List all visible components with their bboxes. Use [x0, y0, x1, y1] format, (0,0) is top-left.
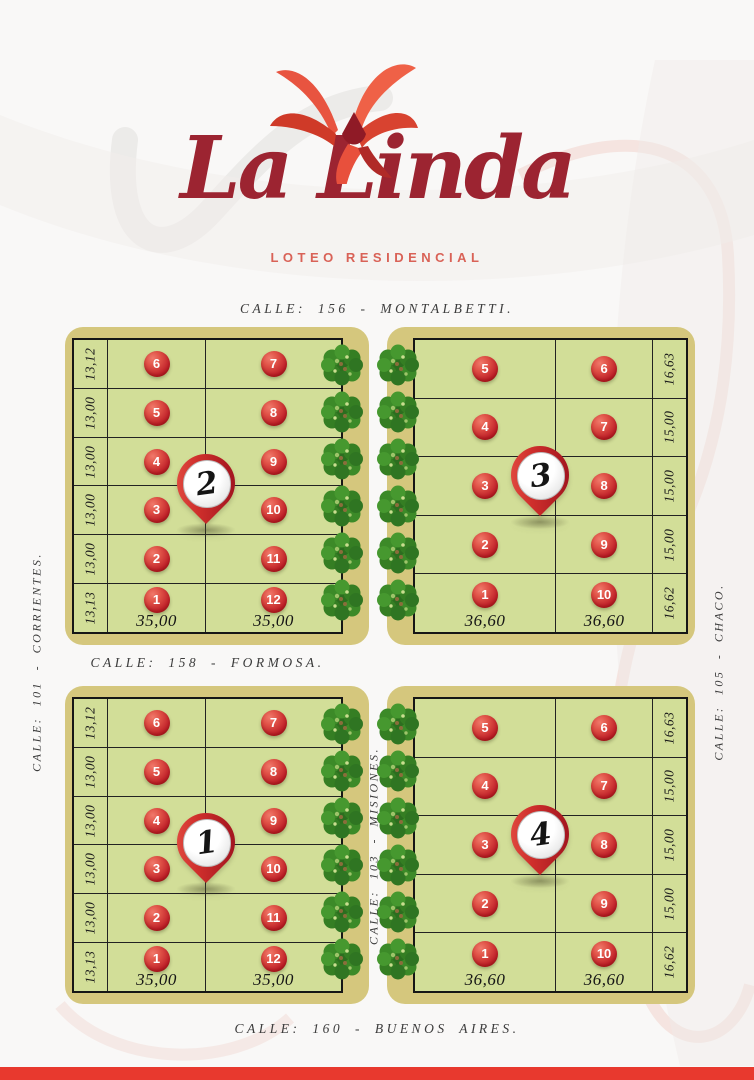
measure-cell: 15,00	[653, 816, 686, 874]
lot-cell: 7	[556, 399, 653, 457]
lot-cell: 5	[108, 748, 206, 796]
lot-number-badge: 4	[472, 773, 498, 799]
lot-cell: 6	[556, 699, 653, 757]
lot-depth-label: 15,00	[662, 829, 678, 862]
lot-number-badge: 4	[144, 449, 170, 475]
lot-depth-label: 15,00	[662, 470, 678, 503]
lot-number-badge: 2	[472, 891, 498, 917]
lot-depth-label: 15,00	[662, 411, 678, 444]
block-manzana-2: 13,12 6 7 13,00 5 8 13,00 4 9 13,00 3 10…	[65, 327, 369, 645]
measure-cell: 13,00	[74, 486, 108, 534]
lot-number-badge: 1	[472, 582, 498, 608]
lot-cell: 2	[108, 535, 206, 583]
measure-cell: 15,00	[653, 457, 686, 515]
lot-cell: 5	[108, 389, 206, 437]
lot-depth-label: 13,00	[83, 804, 99, 837]
lot-row: 13,12 6 7	[74, 340, 341, 389]
lot-number-badge: 8	[261, 400, 287, 426]
pin-shadow	[510, 515, 570, 529]
lot-number-badge: 10	[591, 582, 617, 608]
lot-row: 13,12 6 7	[74, 699, 341, 748]
measure-cell: 15,00	[653, 399, 686, 457]
lot-number-badge: 2	[144, 905, 170, 931]
lot-number-badge: 4	[144, 808, 170, 834]
lot-number-badge: 7	[591, 773, 617, 799]
lot-depth-label: 13,12	[83, 347, 99, 380]
lot-depth-label: 15,00	[662, 887, 678, 920]
lot-number-badge: 3	[144, 856, 170, 882]
measure-cell: 13,00	[74, 894, 108, 942]
logo-subtitle: LOTEO RESIDENCIAL	[0, 250, 754, 265]
lot-number-badge: 6	[144, 710, 170, 736]
lot-width-label: 36,60	[556, 970, 652, 990]
lot-number-badge: 8	[591, 473, 617, 499]
lot-number-badge: 6	[144, 351, 170, 377]
lot-cell: 8	[206, 389, 341, 437]
lot-row: 13,13 135,00 1235,00	[74, 943, 341, 991]
lot-cell: 5	[415, 699, 556, 757]
measure-cell: 13,12	[74, 340, 108, 388]
block-number: 2	[194, 465, 220, 504]
lot-number-badge: 5	[472, 356, 498, 382]
measure-cell: 16,63	[653, 340, 686, 398]
lot-row: 13,00 5 8	[74, 389, 341, 438]
lot-width-label: 36,60	[556, 611, 652, 631]
street-label-corrientes: CALLE: 101 - CORRIENTES.	[30, 552, 45, 772]
lot-number-badge: 7	[261, 351, 287, 377]
lot-number-badge: 1	[472, 941, 498, 967]
lot-width-label: 35,00	[206, 970, 341, 990]
lot-number-badge: 7	[261, 710, 287, 736]
measure-cell: 13,00	[74, 438, 108, 486]
lot-depth-label: 13,13	[83, 951, 99, 984]
lot-cell: 6	[108, 340, 206, 388]
measure-cell: 16,63	[653, 699, 686, 757]
lot-row: 5 6 16,63	[415, 699, 686, 758]
block-number: 1	[194, 824, 220, 863]
lot-cell: 1235,00	[206, 584, 341, 632]
lot-number-badge: 5	[144, 759, 170, 785]
lot-depth-label: 13,00	[83, 543, 99, 576]
lot-number-badge: 4	[472, 414, 498, 440]
lot-number-badge: 10	[261, 856, 287, 882]
lot-number-badge: 12	[261, 587, 287, 613]
lot-depth-label: 15,00	[662, 528, 678, 561]
pin-shadow	[176, 523, 236, 537]
lot-cell: 7	[206, 340, 341, 388]
lot-number-badge: 11	[261, 546, 287, 572]
lot-cell: 1036,60	[556, 574, 653, 632]
lot-number-badge: 3	[472, 832, 498, 858]
lot-cell: 135,00	[108, 943, 206, 991]
lot-width-label: 35,00	[206, 611, 341, 631]
lot-row: 13,00 5 8	[74, 748, 341, 797]
measure-cell: 15,00	[653, 875, 686, 933]
measure-cell: 15,00	[653, 516, 686, 574]
lot-cell: 6	[556, 340, 653, 398]
lot-width-label: 36,60	[415, 970, 555, 990]
street-label-montalbetti: CALLE: 156 - MONTALBETTI.	[0, 301, 754, 317]
lot-depth-label: 16,63	[662, 352, 678, 385]
lot-depth-label: 13,00	[83, 494, 99, 527]
lot-cell: 6	[108, 699, 206, 747]
lot-cell: 8	[206, 748, 341, 796]
lot-row: 136,60 1036,60 16,62	[415, 933, 686, 991]
measure-cell: 13,13	[74, 584, 108, 632]
lot-number-badge: 9	[261, 449, 287, 475]
measure-cell: 13,00	[74, 845, 108, 893]
lot-number-badge: 3	[144, 497, 170, 523]
lot-depth-label: 13,12	[83, 706, 99, 739]
lot-number-badge: 12	[261, 946, 287, 972]
block-number: 3	[528, 457, 554, 496]
lot-cell: 11	[206, 535, 341, 583]
lot-number-badge: 11	[261, 905, 287, 931]
pin-circle: 1	[183, 819, 231, 867]
lot-cell: 9	[556, 516, 653, 574]
loteo-map-flyer: La Linda LOTEO RESIDENCIAL CALLE: 156 - …	[0, 0, 754, 1080]
lot-row: 13,00 2 11	[74, 535, 341, 584]
lot-cell: 1235,00	[206, 943, 341, 991]
lot-width-label: 35,00	[108, 970, 205, 990]
lot-depth-label: 13,00	[83, 902, 99, 935]
lot-number-badge: 8	[261, 759, 287, 785]
lot-cell: 7	[556, 758, 653, 816]
lot-number-badge: 9	[591, 532, 617, 558]
street-label-formosa: CALLE: 158 - FORMOSA.	[65, 655, 350, 671]
lot-number-badge: 2	[144, 546, 170, 572]
lot-cell: 2	[108, 894, 206, 942]
lot-cell: 5	[415, 340, 556, 398]
lot-number-badge: 10	[591, 941, 617, 967]
lot-number-badge: 6	[591, 356, 617, 382]
lot-cell: 11	[206, 894, 341, 942]
ceibo-flower-icon	[268, 46, 420, 184]
lot-depth-label: 13,13	[83, 592, 99, 625]
lot-number-badge: 5	[144, 400, 170, 426]
footer-accent-bar	[0, 1067, 754, 1080]
lot-number-badge: 2	[472, 532, 498, 558]
lot-depth-label: 15,00	[662, 770, 678, 803]
lot-cell: 9	[556, 875, 653, 933]
lot-width-label: 35,00	[108, 611, 205, 631]
lot-number-badge: 5	[472, 715, 498, 741]
pin-shadow	[510, 874, 570, 888]
measure-cell: 13,00	[74, 389, 108, 437]
lot-cell: 8	[556, 457, 653, 515]
street-label-chaco: CALLE: 105 - CHACO.	[712, 583, 727, 760]
block-number: 4	[528, 816, 554, 855]
lot-width-label: 36,60	[415, 611, 555, 631]
measure-cell: 13,13	[74, 943, 108, 991]
lot-depth-label: 13,00	[83, 396, 99, 429]
lot-number-badge: 8	[591, 832, 617, 858]
lot-cell: 1036,60	[556, 933, 653, 991]
lot-cell: 136,60	[415, 933, 556, 991]
pin-circle: 4	[517, 811, 565, 859]
lot-row: 13,13 135,00 1235,00	[74, 584, 341, 632]
lot-number-badge: 9	[261, 808, 287, 834]
lot-number-badge: 10	[261, 497, 287, 523]
lot-cell: 136,60	[415, 574, 556, 632]
lot-number-badge: 9	[591, 891, 617, 917]
lot-row: 5 6 16,63	[415, 340, 686, 399]
measure-cell: 16,62	[653, 933, 686, 991]
pin-circle: 2	[183, 460, 231, 508]
lot-row: 13,00 2 11	[74, 894, 341, 943]
street-label-misiones: CALLE: 103 - MISIONES.	[367, 747, 382, 945]
measure-cell: 13,12	[74, 699, 108, 747]
measure-cell: 15,00	[653, 758, 686, 816]
pin-circle: 3	[517, 452, 565, 500]
lot-depth-label: 13,00	[83, 755, 99, 788]
block-manzana-1: 13,12 6 7 13,00 5 8 13,00 4 9 13,00 3 10…	[65, 686, 369, 1004]
lot-number-badge: 6	[591, 715, 617, 741]
lot-number-badge: 1	[144, 587, 170, 613]
block-manzana-4: 5 6 16,63 4 7 15,00 3 8 15,00 2 9 15,00 …	[387, 686, 695, 1004]
lot-cell: 135,00	[108, 584, 206, 632]
measure-cell: 13,00	[74, 748, 108, 796]
lot-number-badge: 3	[472, 473, 498, 499]
measure-cell: 13,00	[74, 797, 108, 845]
measure-cell: 13,00	[74, 535, 108, 583]
lot-cell: 7	[206, 699, 341, 747]
lot-number-badge: 1	[144, 946, 170, 972]
pin-shadow	[176, 882, 236, 896]
lot-depth-label: 16,63	[662, 711, 678, 744]
lot-depth-label: 16,62	[662, 587, 678, 620]
measure-cell: 16,62	[653, 574, 686, 632]
lot-row: 136,60 1036,60 16,62	[415, 574, 686, 632]
lot-depth-label: 16,62	[662, 946, 678, 979]
block-manzana-3: 5 6 16,63 4 7 15,00 3 8 15,00 2 9 15,00 …	[387, 327, 695, 645]
lot-depth-label: 13,00	[83, 853, 99, 886]
lot-number-badge: 7	[591, 414, 617, 440]
street-label-buenos-aires: CALLE: 160 - BUENOS AIRES.	[0, 1021, 754, 1037]
lot-cell: 8	[556, 816, 653, 874]
lot-depth-label: 13,00	[83, 445, 99, 478]
